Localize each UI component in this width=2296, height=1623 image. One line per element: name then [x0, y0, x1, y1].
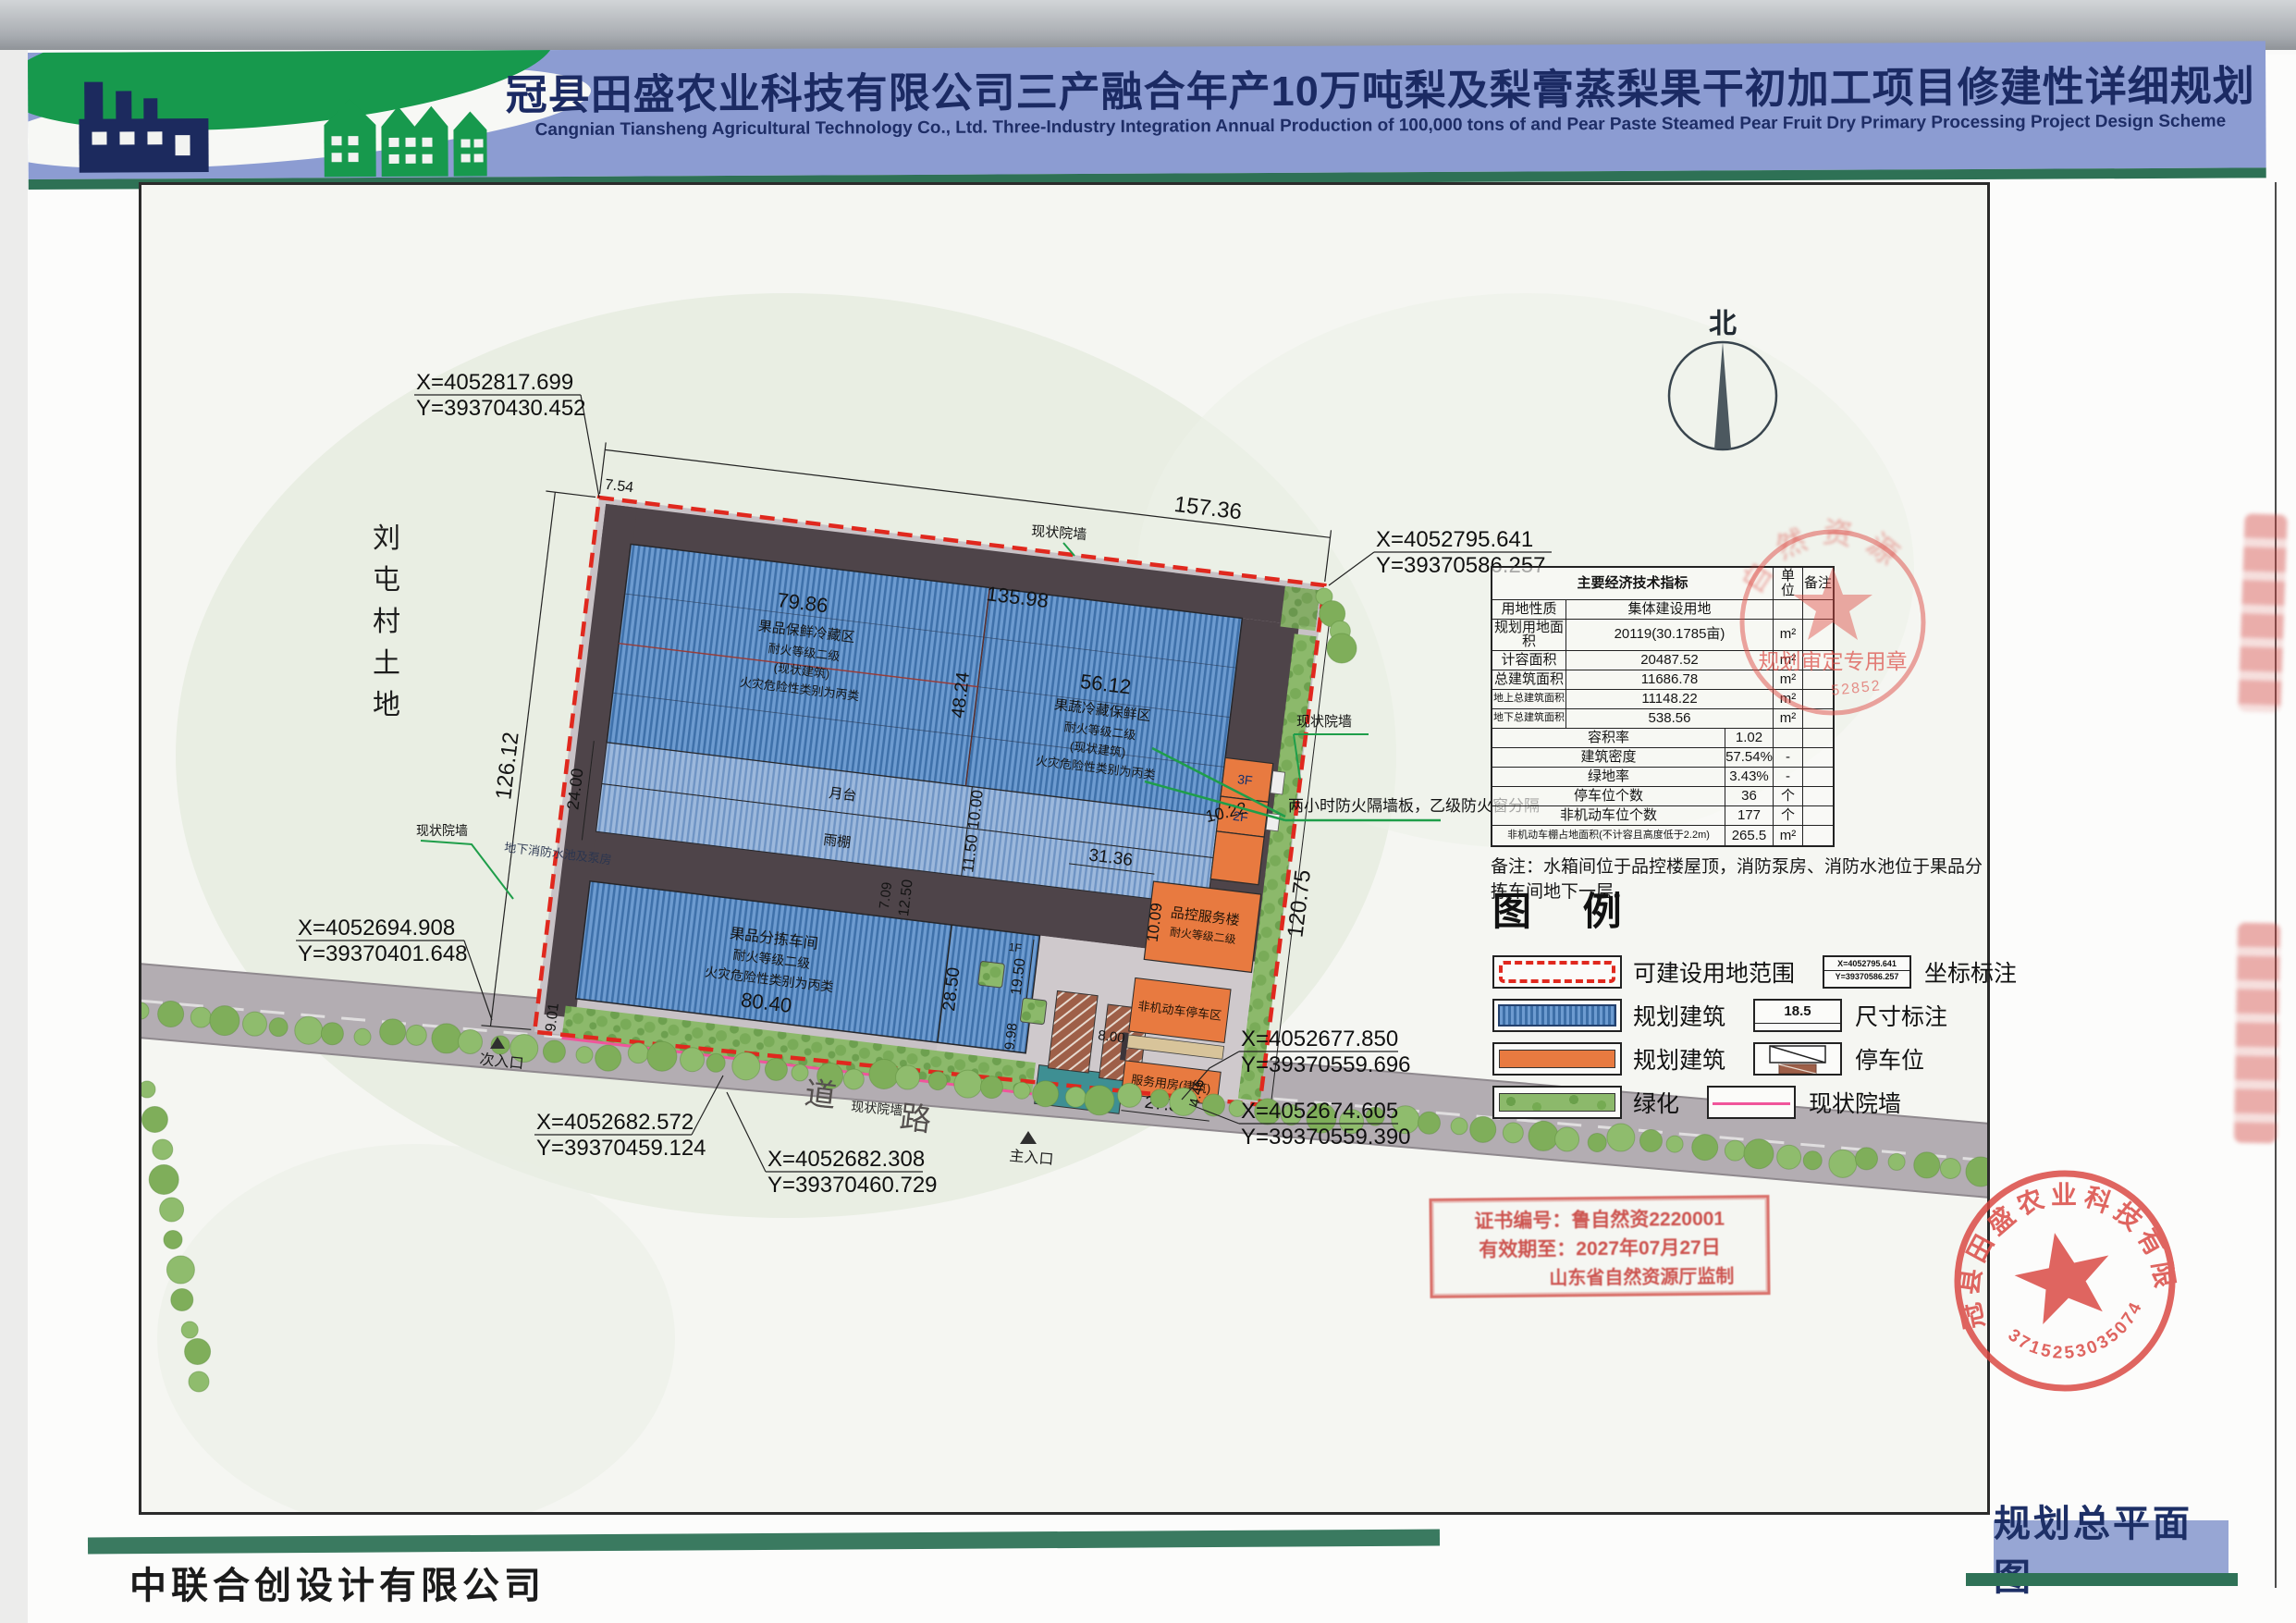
canopy-label: 雨棚 [822, 832, 852, 851]
coord-3-y: Y=39370459.124 [536, 1136, 706, 1161]
legend-title: 图 例 [1492, 880, 1992, 937]
margin-stamp-1 [2238, 513, 2287, 712]
table-row: 建筑密度 57.54% - [1492, 748, 1833, 768]
svg-text:村: 村 [373, 607, 400, 637]
table-row: 非机动车棚占地面积(不计容且高度低于2.2m) 265.5 m² [1492, 826, 1833, 845]
green-corner [1281, 586, 1320, 631]
coord-6-x: X=4052674.605 [1241, 1099, 1398, 1124]
road-char-1: 道 [803, 1076, 838, 1114]
tech-indicator-table: 主要经济技术指标 单位 备注 用地性质 集体建设用地 规划用地面积 20119(… [1491, 566, 1835, 847]
company-seal-star [2007, 1223, 2119, 1328]
svg-text:3715253035074: 3715253035074 [2001, 1295, 2155, 1376]
table-row: 容积率 1.02 [1492, 729, 1833, 748]
svg-text:屯: 屯 [373, 565, 400, 596]
svg-text:刘: 刘 [373, 523, 400, 554]
legend: 图 例 可建设用地范围 X=4052795.641 Y=39370586.257… [1492, 880, 1992, 1124]
legend-row: 规划建筑 18.5 尺寸标注 [1492, 993, 1992, 1037]
footer-green-bar [88, 1530, 1440, 1555]
legend-swatch-planned-blue [1492, 999, 1622, 1032]
coord-6-y: Y=39370559.390 [1241, 1125, 1411, 1150]
design-company: 中联合创设计有限公司 [129, 1555, 546, 1609]
existing-wall-label-east: 现状院墙 [1296, 713, 1352, 730]
legend-swatch-coordinate: X=4052795.641 Y=39370586.257 [1823, 955, 1911, 989]
sheet-title-green-bar [1966, 1573, 2238, 1586]
coord-0-x: X=4052817.699 [416, 370, 573, 395]
table-col-note: 备注 [1803, 568, 1833, 600]
sheet-title-block: 规划总平面图 [1994, 1520, 2228, 1574]
sheet-outer-border [2275, 182, 2277, 1588]
legend-swatch-green [1492, 1086, 1622, 1119]
courtyard-green-2 [1020, 998, 1047, 1025]
scanned-plan-page: 冠县田盛农业科技有限公司三产融合年产10万吨梨及梨膏蒸梨果干初加工项目修建性详细… [0, 0, 2296, 1623]
dim-709: 7.09 [877, 881, 895, 910]
road-char-2: 路 [898, 1100, 933, 1138]
existing-wall-label-west: 现状院墙 [416, 823, 468, 838]
legend-swatch-planned-orange [1492, 1042, 1622, 1076]
parking-row-1 [1048, 990, 1098, 1073]
banner-background: 冠县田盛农业科技有限公司三产融合年产10万吨梨及梨膏蒸梨果干初加工项目修建性详细… [28, 41, 2266, 179]
dim-998: 9.98 [1002, 1022, 1021, 1051]
table-row: 计容面积 20487.52 m² [1492, 651, 1833, 670]
scan-edge-left [0, 50, 28, 1623]
table-row: 停车位个数 36 个 [1492, 787, 1833, 806]
factory-icon [79, 80, 232, 175]
table-row: 用地性质 集体建设用地 [1492, 600, 1833, 620]
table-title: 主要经济技术指标 [1492, 568, 1774, 600]
coord-1-x: X=4052795.641 [1376, 527, 1533, 552]
coord-5-y: Y=39370559.696 [1241, 1052, 1411, 1077]
legend-swatch-wall [1707, 1086, 1796, 1119]
floor-1f-label: 1F [1008, 941, 1023, 955]
legend-swatch-dimension: 18.5 [1753, 999, 1842, 1032]
table-row: 非机动车位个数 177 个 [1492, 806, 1833, 826]
floor-3f-label: 3F [1236, 771, 1253, 788]
table-row: 地下总建筑面积 538.56 m² [1492, 709, 1833, 729]
table-row: 地上总建筑面积 11148.22 m² [1492, 690, 1833, 709]
legend-swatch-boundary [1492, 955, 1622, 989]
table-row: 总建筑面积 11686.78 m² [1492, 670, 1833, 690]
site-plan-drawing: 157.36 7.54 126.12 120.75 79.86 135.98 5… [139, 182, 1990, 1515]
certificate-stamp: 证书编号：鲁自然资2220001 有效期至：2027年07月27日 山东省自然资… [1429, 1195, 1770, 1298]
legend-row: 绿化 现状院墙 [1492, 1080, 1992, 1124]
table-row: 规划用地面积 20119(30.1785亩) m² [1492, 620, 1833, 652]
legend-swatch-parking [1753, 1042, 1842, 1076]
coord-5-x: X=4052677.850 [1241, 1027, 1398, 1051]
village-land-label: 刘 屯 村 土 地 [373, 523, 400, 720]
margin-stamp-2 [2234, 923, 2280, 1144]
coord-4-y: Y=39370460.729 [767, 1173, 938, 1198]
coord-2-x: X=4052694.908 [298, 916, 455, 941]
courtyard-green-1 [978, 961, 1005, 988]
dim-800: 8.00 [1097, 1027, 1125, 1046]
legend-row: 可建设用地范围 X=4052795.641 Y=39370586.257 坐标标… [1492, 950, 1992, 993]
legend-row: 规划建筑 停车位 [1492, 1037, 1992, 1080]
header-banner: 冠县田盛农业科技有限公司三产融合年产10万吨梨及梨膏蒸梨果干初加工项目修建性详细… [28, 41, 2266, 191]
green-buildings-icon [324, 87, 510, 179]
project-title: 冠县田盛农业科技有限公司三产融合年产10万吨梨及梨膏蒸梨果干初加工项目修建性详细… [499, 52, 2261, 121]
coord-4-x: X=4052682.308 [767, 1147, 925, 1172]
svg-text:地: 地 [373, 690, 400, 720]
svg-text:土: 土 [373, 648, 400, 679]
table-row: 绿地率 3.43% - [1492, 768, 1833, 787]
table-col-unit: 单位 [1774, 568, 1803, 600]
coord-3-x: X=4052682.572 [536, 1110, 694, 1135]
coord-0-y: Y=39370430.452 [416, 396, 586, 421]
platform-label: 月台 [828, 785, 857, 804]
company-seal-number: 3715253035074 [2001, 1295, 2155, 1376]
coord-2-y: Y=39370401.648 [298, 941, 468, 966]
